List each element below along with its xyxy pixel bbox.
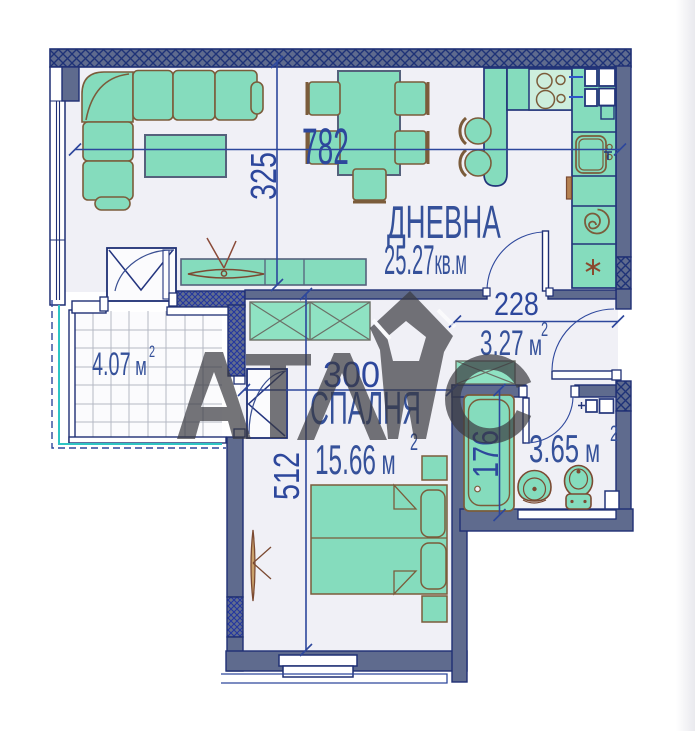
svg-text:325: 325 xyxy=(243,152,284,200)
svg-text:2: 2 xyxy=(541,318,548,341)
svg-text:4.07 м: 4.07 м xyxy=(92,346,147,382)
svg-text:15.66 м: 15.66 м xyxy=(315,437,396,483)
svg-text:512: 512 xyxy=(266,452,307,500)
svg-text:3.65 м: 3.65 м xyxy=(529,428,600,472)
svg-text:25.27кв.м: 25.27кв.м xyxy=(384,236,467,283)
svg-text:2: 2 xyxy=(149,343,155,362)
svg-text:228: 228 xyxy=(494,287,539,323)
svg-text:782: 782 xyxy=(302,118,349,175)
svg-text:2: 2 xyxy=(610,421,618,446)
